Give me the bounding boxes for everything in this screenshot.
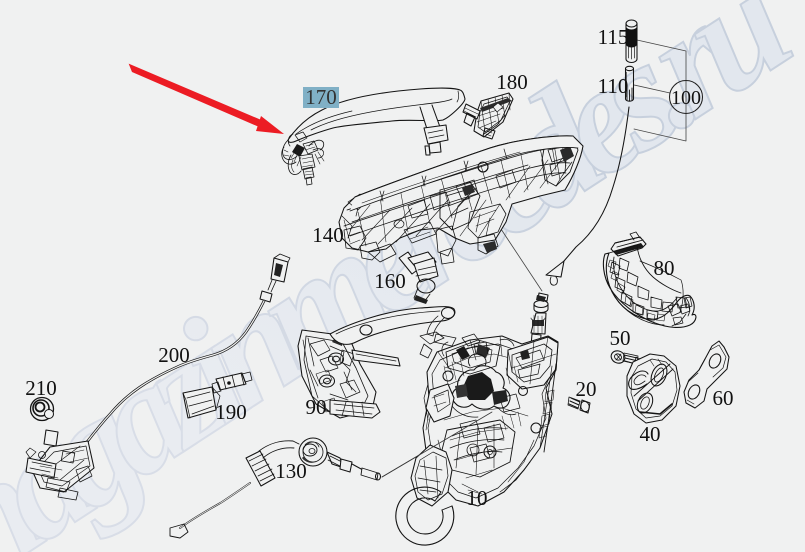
svg-text:130: 130 — [275, 459, 307, 483]
svg-text:50: 50 — [610, 326, 631, 350]
svg-text:180: 180 — [496, 70, 528, 94]
svg-text:40: 40 — [640, 422, 661, 446]
svg-text:90: 90 — [306, 395, 327, 419]
svg-text:100: 100 — [671, 87, 701, 109]
svg-text:210: 210 — [25, 376, 57, 400]
svg-text:200: 200 — [158, 343, 190, 367]
svg-text:115: 115 — [598, 25, 629, 49]
svg-text:170: 170 — [305, 85, 337, 109]
svg-text:160: 160 — [374, 269, 406, 293]
svg-text:10: 10 — [467, 486, 488, 510]
svg-text:60: 60 — [713, 386, 734, 410]
svg-text:140: 140 — [312, 223, 344, 247]
svg-text:110: 110 — [598, 74, 629, 98]
svg-text:80: 80 — [654, 256, 675, 280]
svg-text:20: 20 — [576, 377, 597, 401]
svg-text:190: 190 — [215, 400, 247, 424]
